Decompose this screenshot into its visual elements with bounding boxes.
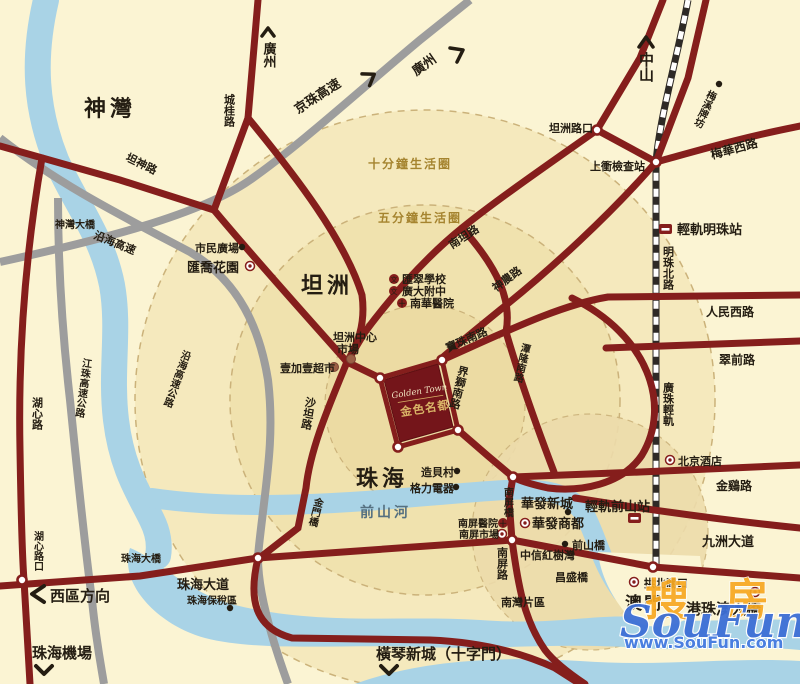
nanping-hospital-icon: 十 [498, 518, 508, 528]
label-cuiqian: 翠前路 [719, 352, 756, 367]
watermark-url: www.SouFun.com [624, 633, 783, 652]
label-np-market: 南屏市場 [459, 528, 499, 541]
area-zhuhai: 珠海 [356, 466, 408, 492]
node-jinji-jct [509, 473, 518, 482]
label-np-hospital: 南屏醫院 [458, 517, 498, 530]
label-tz-market-2: 市場 [337, 342, 359, 356]
label-renmin: 人民西路 [706, 304, 755, 319]
node-gongbei [649, 563, 658, 572]
real-estate-location-map: Golden Town 金色名都 文 文 [0, 0, 800, 684]
node-zhuhai-bridge-jct [254, 554, 263, 563]
area-tanzhou: 坦洲 [301, 274, 353, 299]
label-zhuhai-ave: 珠海大道 [177, 577, 229, 593]
label-shangchong: 上衝檢查站 [590, 159, 645, 173]
svg-text:文: 文 [391, 287, 398, 296]
label-beijing-hotel: 北京酒店 [678, 454, 722, 468]
area-shenwan: 神灣 [84, 96, 136, 122]
label-jiuzhou: 九洲大道 [701, 534, 754, 550]
label-jinji: 金鷄路 [715, 478, 753, 493]
label-zhongxin: 中信紅樹灣 [520, 548, 575, 562]
node-property-se [454, 426, 463, 435]
node-property-sw [394, 443, 403, 452]
label-huxin-jct: 湖心路口 [32, 530, 44, 571]
svg-text:十: 十 [399, 299, 406, 308]
huafa-shangdu-icon [521, 519, 530, 528]
guangda-school-icon: 文 [389, 286, 399, 296]
label-huafa-xincheng: 華發新城 [521, 496, 573, 512]
label-huicui: 匯翠學校 [402, 272, 447, 286]
label-huxin: 湖心路 [31, 396, 44, 431]
label-zhongshan: 中山 [637, 51, 655, 83]
mingzhu-station-icon [659, 224, 672, 234]
label-xiqu: 西區方向 [50, 587, 110, 605]
label-five-minute: 五分鐘生活圈 [378, 210, 462, 225]
qianshan-bridge-dot [562, 541, 568, 547]
meixi-dot [716, 81, 722, 87]
zaobei-dot [454, 468, 460, 474]
label-guangzhou-red: 廣州 [261, 41, 278, 69]
label-airport: 珠海機場 [32, 644, 92, 662]
node-huxin-jct [18, 576, 27, 585]
label-chenggui: 城桂路 [223, 93, 237, 128]
label-guangda: 廣大附中 [402, 284, 446, 298]
node-nanping-jct [508, 536, 517, 545]
label-qianshan-station: 輕軌前山站 [585, 499, 650, 515]
map-canvas: Golden Town 金色名都 文 文 [0, 0, 800, 684]
label-tanzhou-jct: 坦洲路口 [549, 121, 593, 135]
label-huiqiao: 匯喬花園 [187, 260, 239, 276]
beijing-hotel-icon [666, 456, 675, 465]
label-huafa-shangdu: 華發商都 [532, 516, 584, 532]
huiqiao-garden-icon [246, 262, 255, 271]
label-ten-minute: 十分鐘生活圈 [368, 156, 452, 171]
label-zhuhai-bridge: 珠海大橋 [121, 552, 162, 565]
node-property-nw [376, 374, 385, 383]
huicui-school-icon: 文 [389, 274, 399, 284]
label-qianshan-bridge: 前山橋 [572, 538, 606, 552]
node-shangchong [652, 158, 661, 167]
svg-text:十: 十 [500, 519, 507, 528]
label-changsheng-bridge: 昌盛橋 [555, 570, 589, 584]
label-shimin: 市民廣場 [195, 241, 239, 255]
node-property-ne [438, 356, 447, 365]
label-mingzhu-rd: 明珠北路 [662, 246, 675, 291]
shimin-square-dot [239, 244, 245, 250]
label-guangzhu-rail: 廣珠輕軌 [662, 381, 675, 427]
label-shenwan-bridge: 神灣大橋 [55, 218, 96, 231]
label-geli: 格力電器 [410, 481, 455, 495]
area-nanwan: 南灣片區 [501, 595, 545, 609]
label-tz-market-1: 坦洲中心 [333, 330, 377, 344]
node-tanzhou-jct [593, 126, 602, 135]
label-mingzhu-station: 輕軌明珠站 [677, 222, 742, 238]
label-hengqin: 橫琴新城（十字門） [376, 645, 511, 663]
label-yijiayi: 壹加壹超市 [280, 361, 335, 375]
label-nanping-rd: 南屏路 [496, 546, 509, 581]
svg-text:文: 文 [391, 275, 398, 284]
nanhua-hospital-icon: 十 [397, 298, 407, 308]
label-bonded-zone: 珠海保稅區 [187, 594, 237, 607]
gongbei-port-icon [630, 578, 639, 587]
label-nanhua: 南華醫院 [410, 296, 454, 310]
label-qianshan-river: 前山河 [360, 504, 411, 521]
label-zaobei: 造貝村 [421, 465, 454, 479]
